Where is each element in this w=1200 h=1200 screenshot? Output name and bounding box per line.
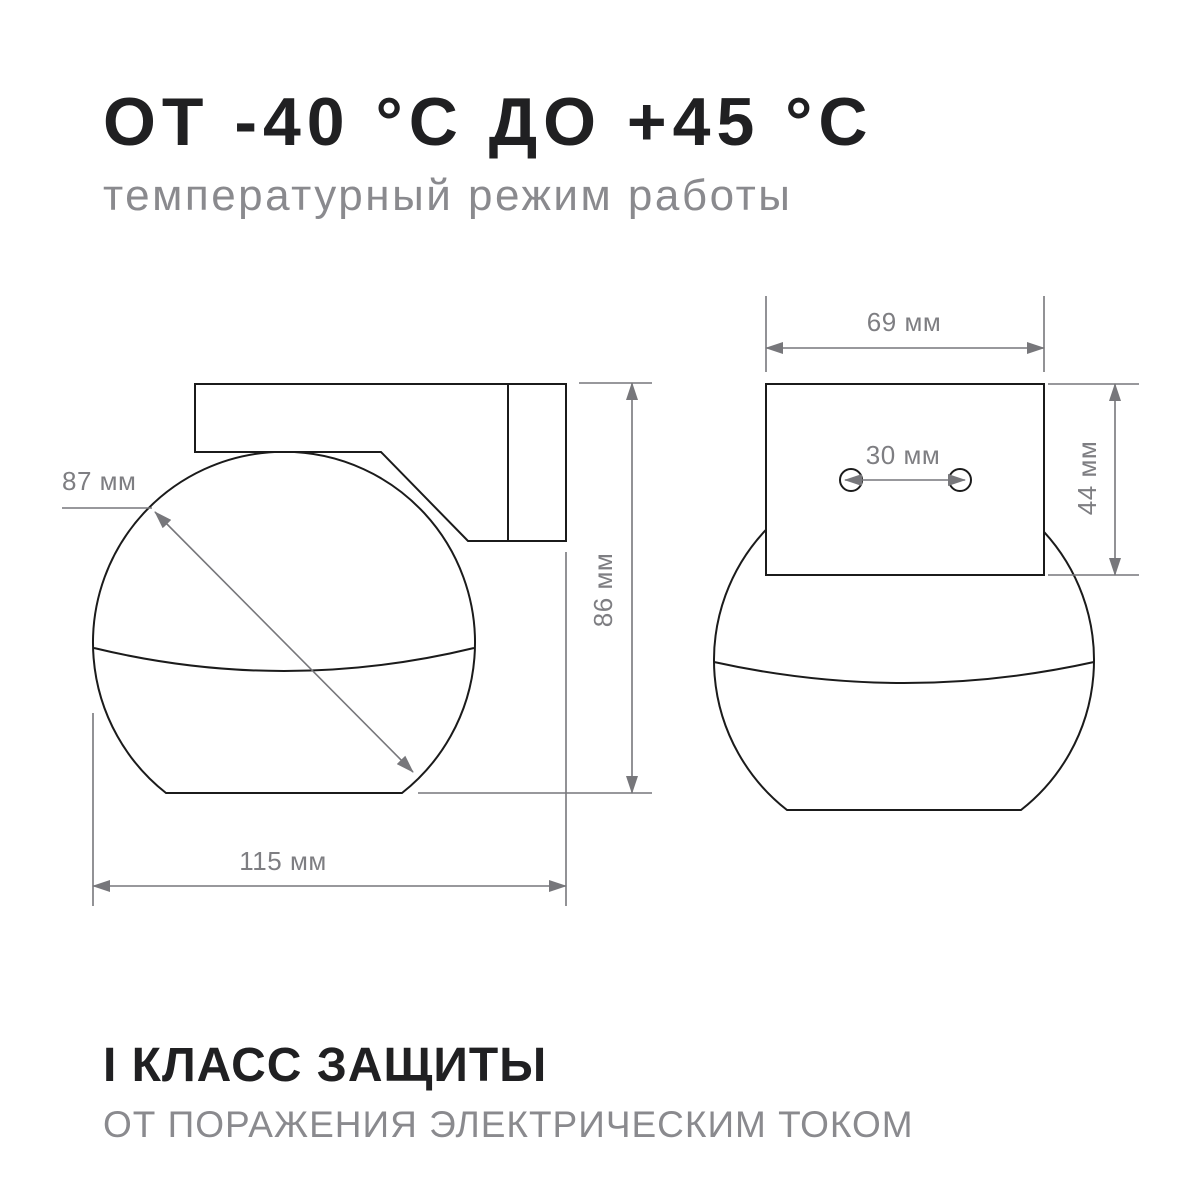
sphere-diameter-label: 87 мм	[62, 468, 136, 494]
protection-class-subtitle: ОТ ПОРАЖЕНИЯ ЭЛЕКТРИЧЕСКИМ ТОКОМ	[103, 1106, 914, 1143]
total-width-label: 115 мм	[239, 848, 326, 874]
total-height-label: 86 мм	[590, 553, 616, 627]
bracket-height-label: 44 мм	[1074, 441, 1100, 515]
front-view	[714, 296, 1139, 810]
hole-spacing-label: 30 мм	[866, 442, 940, 468]
bracket-width-label: 69 мм	[867, 309, 941, 335]
protection-class-footer: I КЛАСС ЗАЩИТЫ ОТ ПОРАЖЕНИЯ ЭЛЕКТРИЧЕСКИ…	[103, 1042, 914, 1143]
protection-class-title: I КЛАСС ЗАЩИТЫ	[103, 1042, 914, 1090]
side-view	[62, 383, 652, 906]
side-sphere-outline	[93, 452, 475, 793]
product-spec-sheet: ОТ -40 °С ДО +45 °С температурный режим …	[0, 0, 1200, 1200]
